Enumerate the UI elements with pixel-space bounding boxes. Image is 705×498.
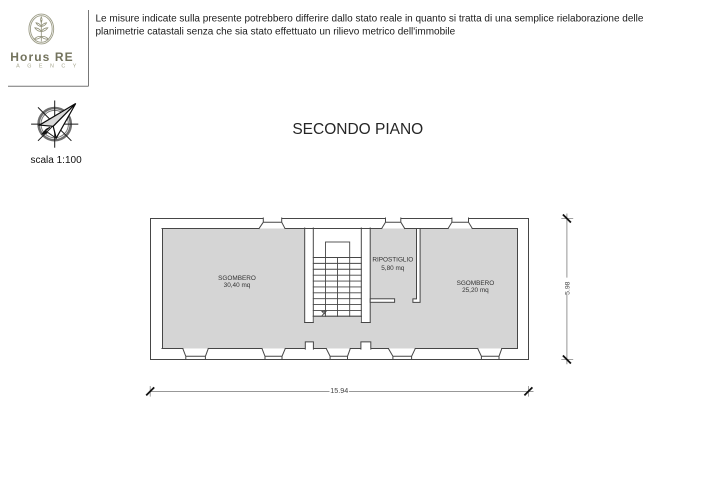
svg-text:5,80 mq: 5,80 mq xyxy=(381,265,405,272)
svg-text:planimetrie catastali senza ch: planimetrie catastali senza che sia stat… xyxy=(96,27,456,38)
svg-text:5.98: 5.98 xyxy=(564,281,571,294)
svg-text:SECONDO PIANO: SECONDO PIANO xyxy=(292,121,423,138)
svg-text:25,20 mq: 25,20 mq xyxy=(462,287,489,294)
svg-text:AGENCY: AGENCY xyxy=(16,63,84,69)
svg-text:scala 1:100: scala 1:100 xyxy=(31,155,83,166)
svg-text:Le misure indicate sulla prese: Le misure indicate sulla presente potreb… xyxy=(96,14,644,25)
svg-text:RIPOSTIGLIO: RIPOSTIGLIO xyxy=(372,256,413,263)
svg-text:30,40 mq: 30,40 mq xyxy=(224,282,251,289)
svg-text:15.94: 15.94 xyxy=(330,386,348,395)
svg-text:SGOMBERO: SGOMBERO xyxy=(218,275,256,282)
svg-text:Horus RE: Horus RE xyxy=(10,50,73,64)
